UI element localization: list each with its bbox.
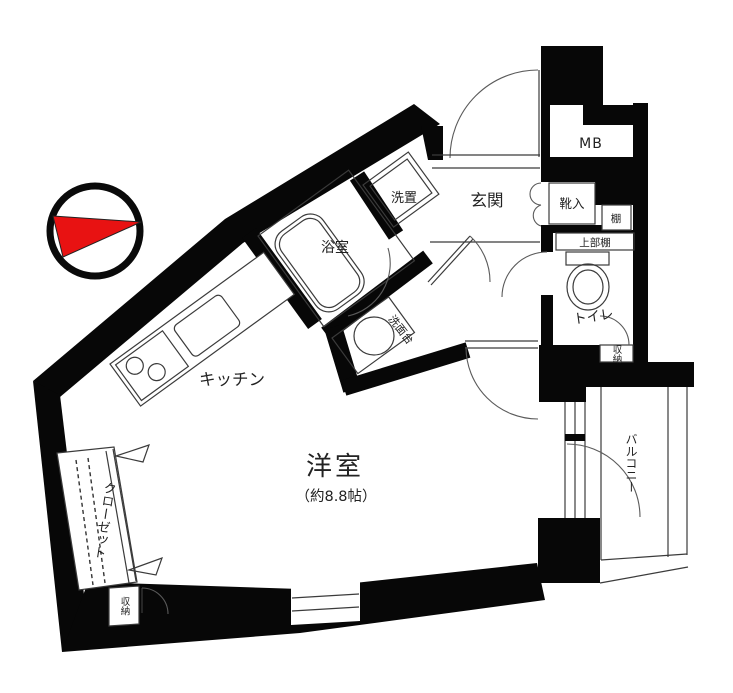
wall-block-bottom-right	[538, 518, 600, 583]
wall-mb-left	[541, 103, 550, 159]
wall-below-mb	[541, 157, 633, 182]
wall-right-column	[633, 103, 648, 362]
label-kitchen: キッチン	[199, 370, 265, 389]
wall-mb-notch	[583, 105, 633, 125]
floorplan: 洋室 （約8.8帖） キッチン 浴室 洗置 洗面台 玄関 MB 靴入 棚 上部棚…	[0, 0, 733, 693]
wall-toilet-left-lower	[541, 295, 553, 345]
entrance-area	[430, 70, 540, 242]
washroom-door	[428, 236, 490, 285]
label-upper-shelf: 上部棚	[579, 236, 611, 249]
label-shelf: 棚	[611, 212, 622, 225]
wall-right-of-shoebox	[595, 182, 633, 205]
shoe-box-door-icon	[533, 205, 541, 226]
toilet-tank	[566, 252, 609, 265]
wall-balcony-top	[586, 362, 694, 387]
label-main-room-size: （約8.8帖）	[295, 488, 376, 505]
wall-vanity-room-b	[344, 350, 468, 388]
toilet-bowl-inner	[573, 270, 603, 304]
wall-below-shoebox	[541, 225, 633, 233]
window-south-glass	[291, 582, 360, 625]
wall-bath-vanity	[326, 257, 428, 334]
label-balcony: バルコニー	[624, 433, 638, 493]
compass	[50, 186, 141, 276]
label-shoe-box: 靴入	[559, 196, 585, 211]
label-bath: 浴室	[321, 239, 349, 256]
shoe-box-door-icon	[530, 183, 541, 205]
label-storage-toilet: 収納	[611, 344, 623, 365]
label-meter-box: MB	[579, 136, 603, 152]
entrance-door-arc	[450, 70, 538, 158]
label-entrance: 玄関	[471, 191, 504, 210]
toilet-room	[502, 233, 634, 362]
window-east-mullion	[565, 434, 585, 441]
wall-mb-top	[541, 46, 603, 105]
washroom-door-arc	[470, 236, 490, 282]
window-south	[291, 582, 360, 625]
label-washer-space: 洗置	[391, 191, 417, 206]
window-east	[565, 402, 585, 518]
room-door	[465, 341, 538, 419]
label-toilet: トイレ	[572, 306, 614, 327]
room-door-arc	[466, 347, 538, 419]
label-main-room: 洋室	[306, 452, 364, 482]
wall-toilet-left-upper	[541, 233, 553, 252]
toilet-door-arc	[502, 252, 547, 297]
floorplan-svg: 洋室 （約8.8帖） キッチン 浴室 洗置 洗面台 玄関 MB 靴入 棚 上部棚…	[0, 0, 733, 693]
closet-door-marker	[116, 445, 149, 462]
label-storage-entry: 収納	[119, 596, 131, 617]
